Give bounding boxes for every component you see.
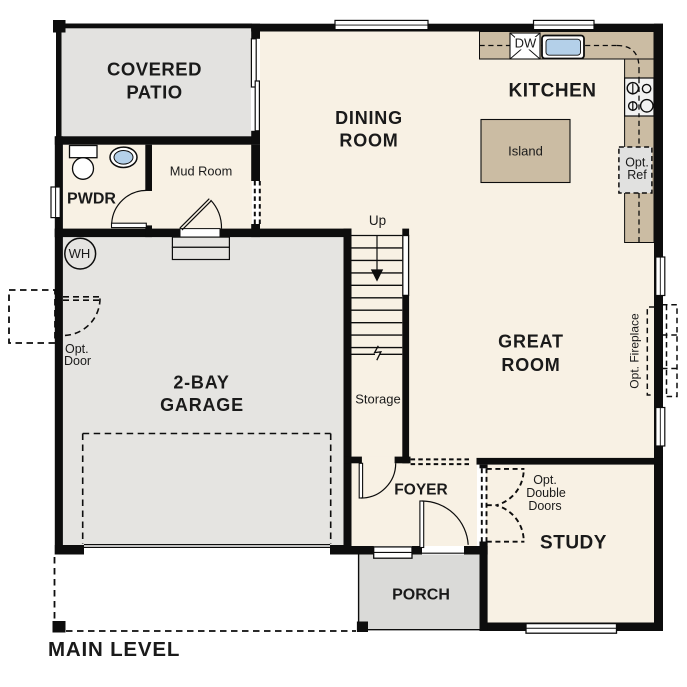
svg-text:ROOM: ROOM xyxy=(501,355,560,375)
svg-text:PORCH: PORCH xyxy=(392,587,450,604)
svg-text:MAIN LEVEL: MAIN LEVEL xyxy=(48,638,180,661)
svg-text:Island: Island xyxy=(508,144,543,159)
svg-text:FOYER: FOYER xyxy=(394,482,447,499)
svg-text:COVERED: COVERED xyxy=(107,59,202,80)
svg-text:ROOM: ROOM xyxy=(339,130,398,150)
svg-text:KITCHEN: KITCHEN xyxy=(509,81,597,102)
svg-text:STUDY: STUDY xyxy=(540,533,607,554)
svg-text:Mud Room: Mud Room xyxy=(170,164,233,179)
svg-text:2-BAY: 2-BAY xyxy=(173,373,229,393)
svg-text:DINING: DINING xyxy=(335,108,403,128)
svg-text:Ref: Ref xyxy=(627,168,647,182)
svg-text:Opt. Fireplace: Opt. Fireplace xyxy=(628,313,642,389)
svg-text:Up: Up xyxy=(369,213,386,228)
svg-text:Opt.: Opt. xyxy=(533,473,557,487)
svg-text:Door: Door xyxy=(64,354,91,368)
svg-text:DW: DW xyxy=(515,36,537,51)
svg-text:PWDR: PWDR xyxy=(67,190,116,207)
svg-text:Doors: Doors xyxy=(528,499,561,513)
svg-text:Double: Double xyxy=(526,486,566,500)
svg-text:GARAGE: GARAGE xyxy=(160,395,244,415)
svg-text:Storage: Storage xyxy=(355,392,401,407)
svg-text:PATIO: PATIO xyxy=(126,81,182,102)
svg-text:WH: WH xyxy=(69,246,91,261)
svg-text:GREAT: GREAT xyxy=(498,332,564,352)
